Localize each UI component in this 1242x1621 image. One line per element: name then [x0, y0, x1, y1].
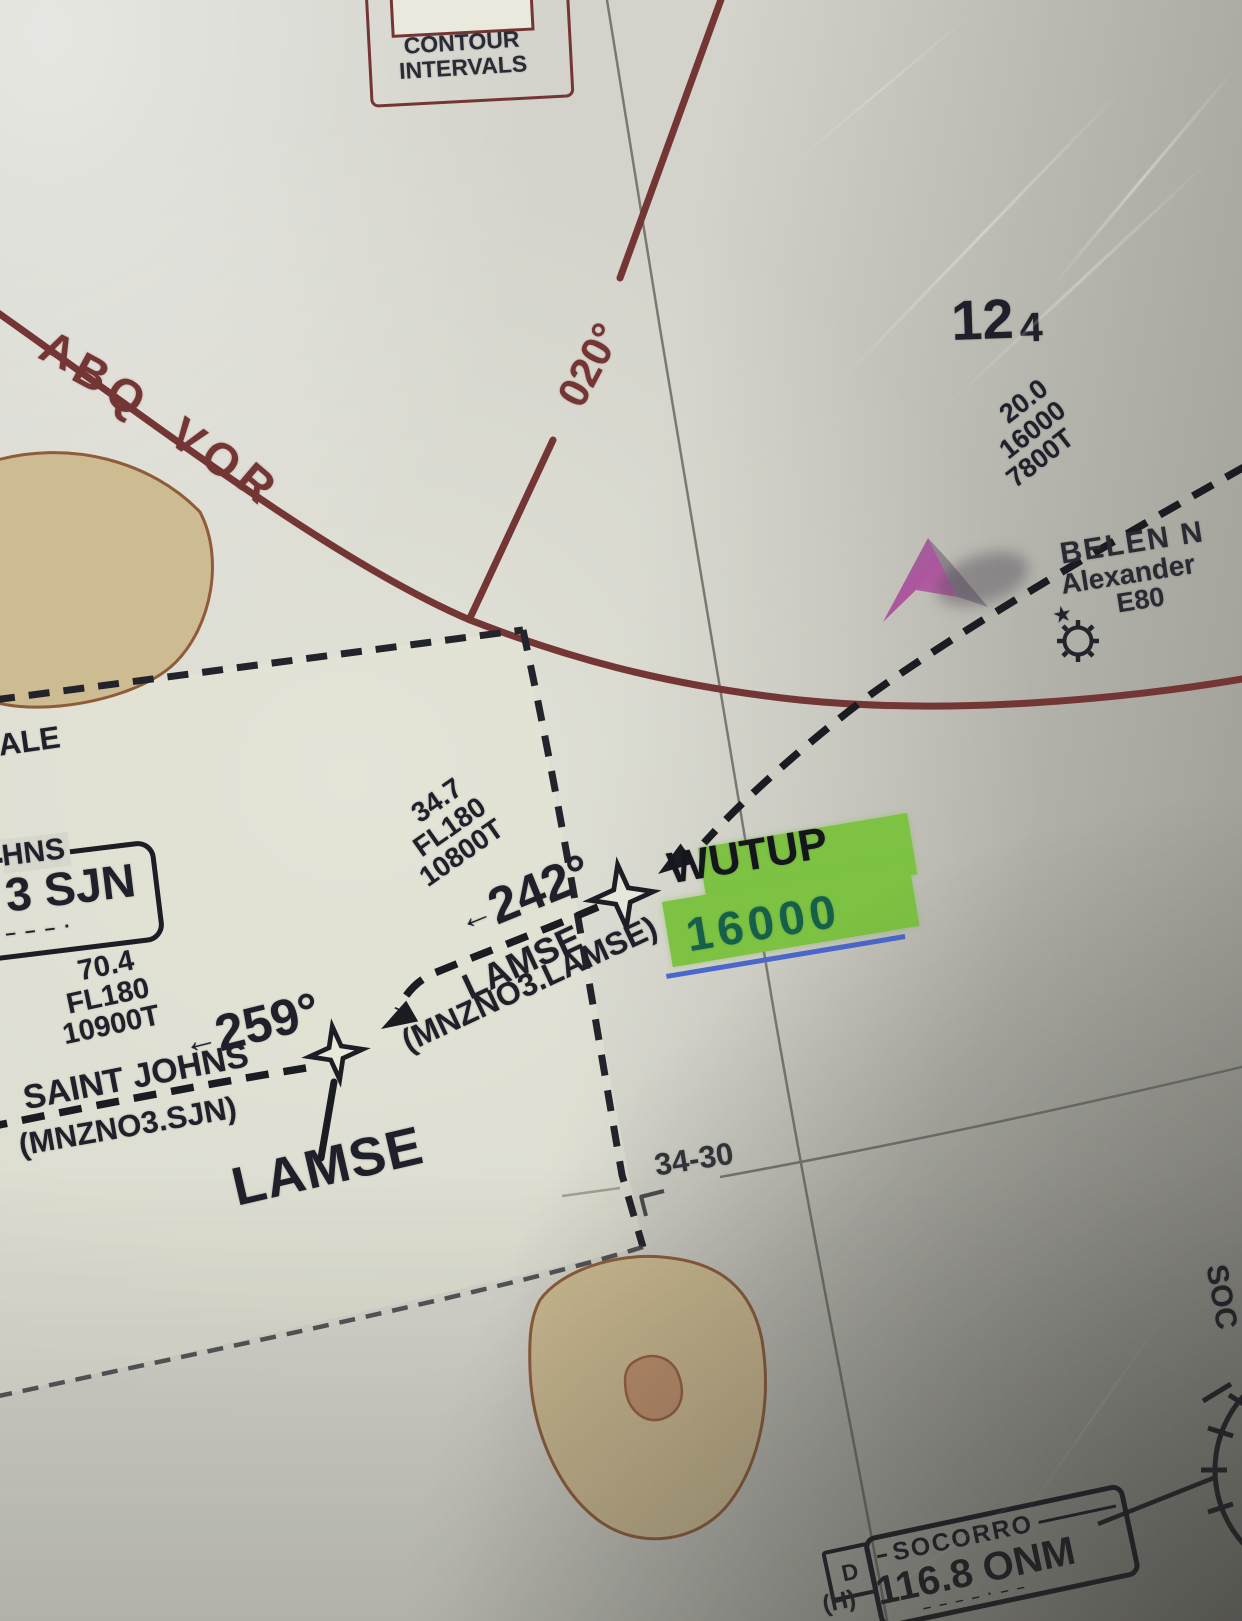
- compass-north-tick: [1203, 1384, 1231, 1401]
- mef-thousands: 12: [950, 287, 1014, 352]
- socorro-dme: D: [839, 1557, 861, 1587]
- max-elevation-figure: 124: [950, 285, 1037, 353]
- chart-geometry: [0, 0, 1242, 1621]
- terrain-contour-south: [530, 1256, 766, 1538]
- mef-hundreds: 4: [1019, 304, 1043, 351]
- terrain-contour-northwest: [0, 453, 212, 708]
- rule-left: [877, 1553, 887, 1558]
- enroute-chart-photo: CONTOUR INTERVALS ABQ VOR 020° 124 20.0 …: [0, 0, 1242, 1621]
- latitude-tick: [640, 1191, 664, 1216]
- latitude-line: [720, 1066, 1242, 1177]
